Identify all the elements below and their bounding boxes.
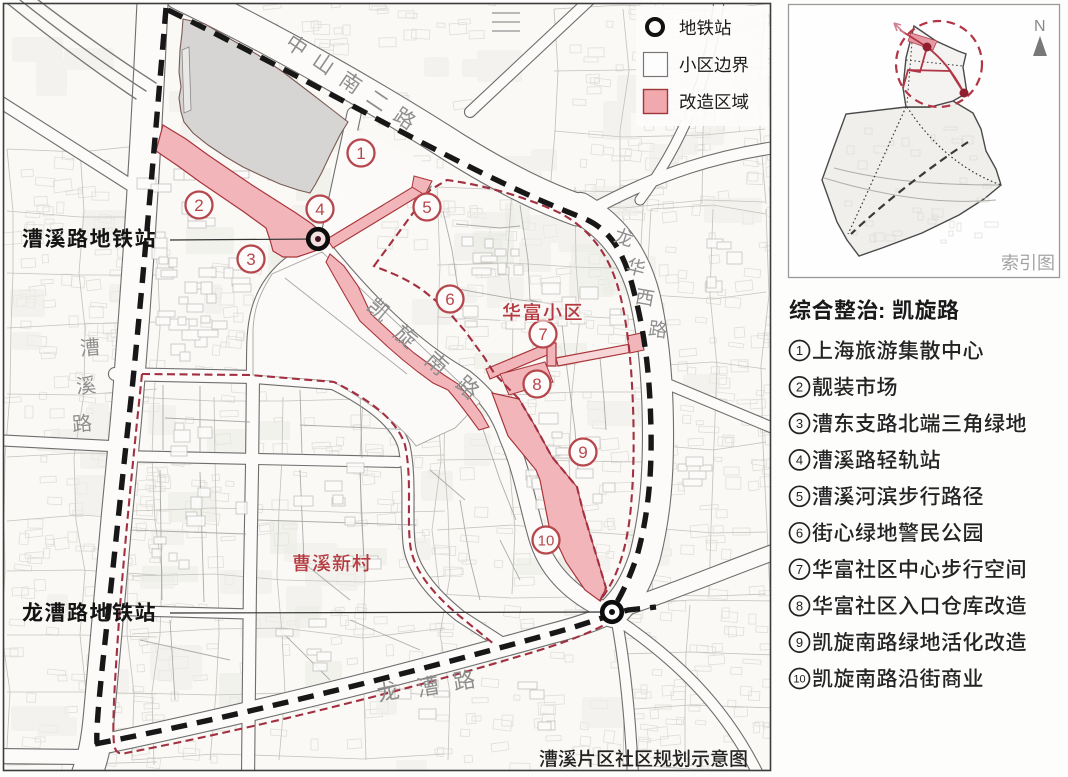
svg-text:5: 5 bbox=[796, 489, 803, 504]
svg-text:6: 6 bbox=[796, 525, 803, 540]
svg-text:7: 7 bbox=[538, 325, 547, 344]
svg-text:2: 2 bbox=[194, 196, 203, 215]
svg-text:8: 8 bbox=[532, 375, 541, 394]
svg-text:9: 9 bbox=[796, 635, 803, 650]
svg-text:N: N bbox=[1034, 18, 1046, 35]
svg-text:8: 8 bbox=[796, 598, 803, 613]
svg-text:3: 3 bbox=[246, 250, 255, 269]
svg-text:1: 1 bbox=[796, 343, 803, 358]
svg-text:2: 2 bbox=[796, 380, 803, 395]
svg-text:7: 7 bbox=[796, 562, 803, 577]
svg-text:6: 6 bbox=[445, 290, 454, 309]
svg-text:5: 5 bbox=[422, 198, 431, 217]
svg-text:10: 10 bbox=[793, 674, 805, 686]
svg-text::: : bbox=[878, 298, 885, 323]
svg-text:4: 4 bbox=[315, 200, 324, 219]
svg-text:10: 10 bbox=[538, 532, 555, 549]
svg-text:3: 3 bbox=[796, 416, 803, 431]
svg-text:1: 1 bbox=[356, 144, 365, 163]
svg-text:4: 4 bbox=[796, 453, 803, 468]
svg-text:9: 9 bbox=[578, 443, 587, 462]
